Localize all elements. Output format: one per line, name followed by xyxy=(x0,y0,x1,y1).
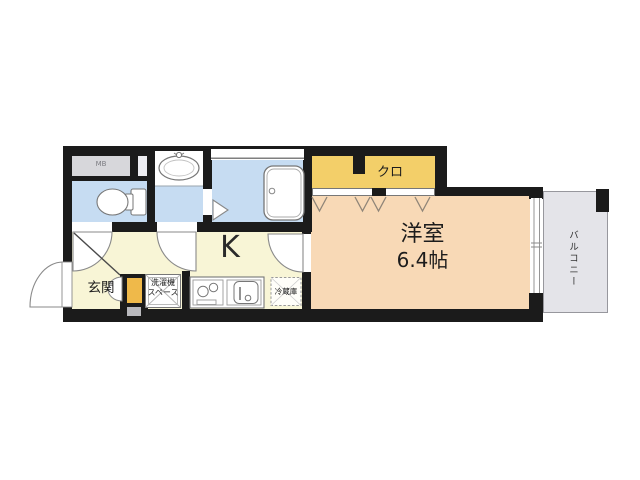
washing-machine-label: 洗濯機 スペース xyxy=(146,278,180,300)
bath-folding-door-icon xyxy=(213,200,228,220)
refrigerator-label: 冷蔵庫 xyxy=(271,278,301,305)
floor-plan: MB クロ K 玄関 洋室 6.4帖 バルコニー 洗濯機 スペース 冷蔵庫 xyxy=(0,0,640,480)
closet-bifold-icon xyxy=(312,197,430,211)
bathtub-icon xyxy=(264,166,304,220)
closet-label: クロ xyxy=(340,158,440,182)
western-room-label: 洋室 xyxy=(330,221,515,248)
meter-box-label: MB xyxy=(72,152,130,176)
balcony-window-icon xyxy=(531,198,542,293)
entrance-label: 玄関 xyxy=(80,277,122,295)
western-room-size: 6.4帖 xyxy=(330,248,515,272)
fixture-layer xyxy=(0,0,640,480)
balcony-label: バルコニー xyxy=(562,224,582,294)
kitchen-label: K xyxy=(210,231,250,264)
western-room-door-arc xyxy=(268,234,303,272)
bathroom-window xyxy=(211,149,304,160)
washing-machine-label-line1: 洗濯機 xyxy=(146,278,180,288)
toilet-icon xyxy=(97,189,146,215)
washbasin-door-arc xyxy=(157,232,196,271)
washing-machine-label-line2: スペース xyxy=(146,288,180,298)
entrance-door-arc xyxy=(30,262,72,307)
washbasin-sink-icon xyxy=(155,151,203,186)
closet-track-tick xyxy=(372,188,386,196)
kitchen-counter xyxy=(190,277,264,308)
western-room-label-block: 洋室 6.4帖 xyxy=(330,221,515,275)
